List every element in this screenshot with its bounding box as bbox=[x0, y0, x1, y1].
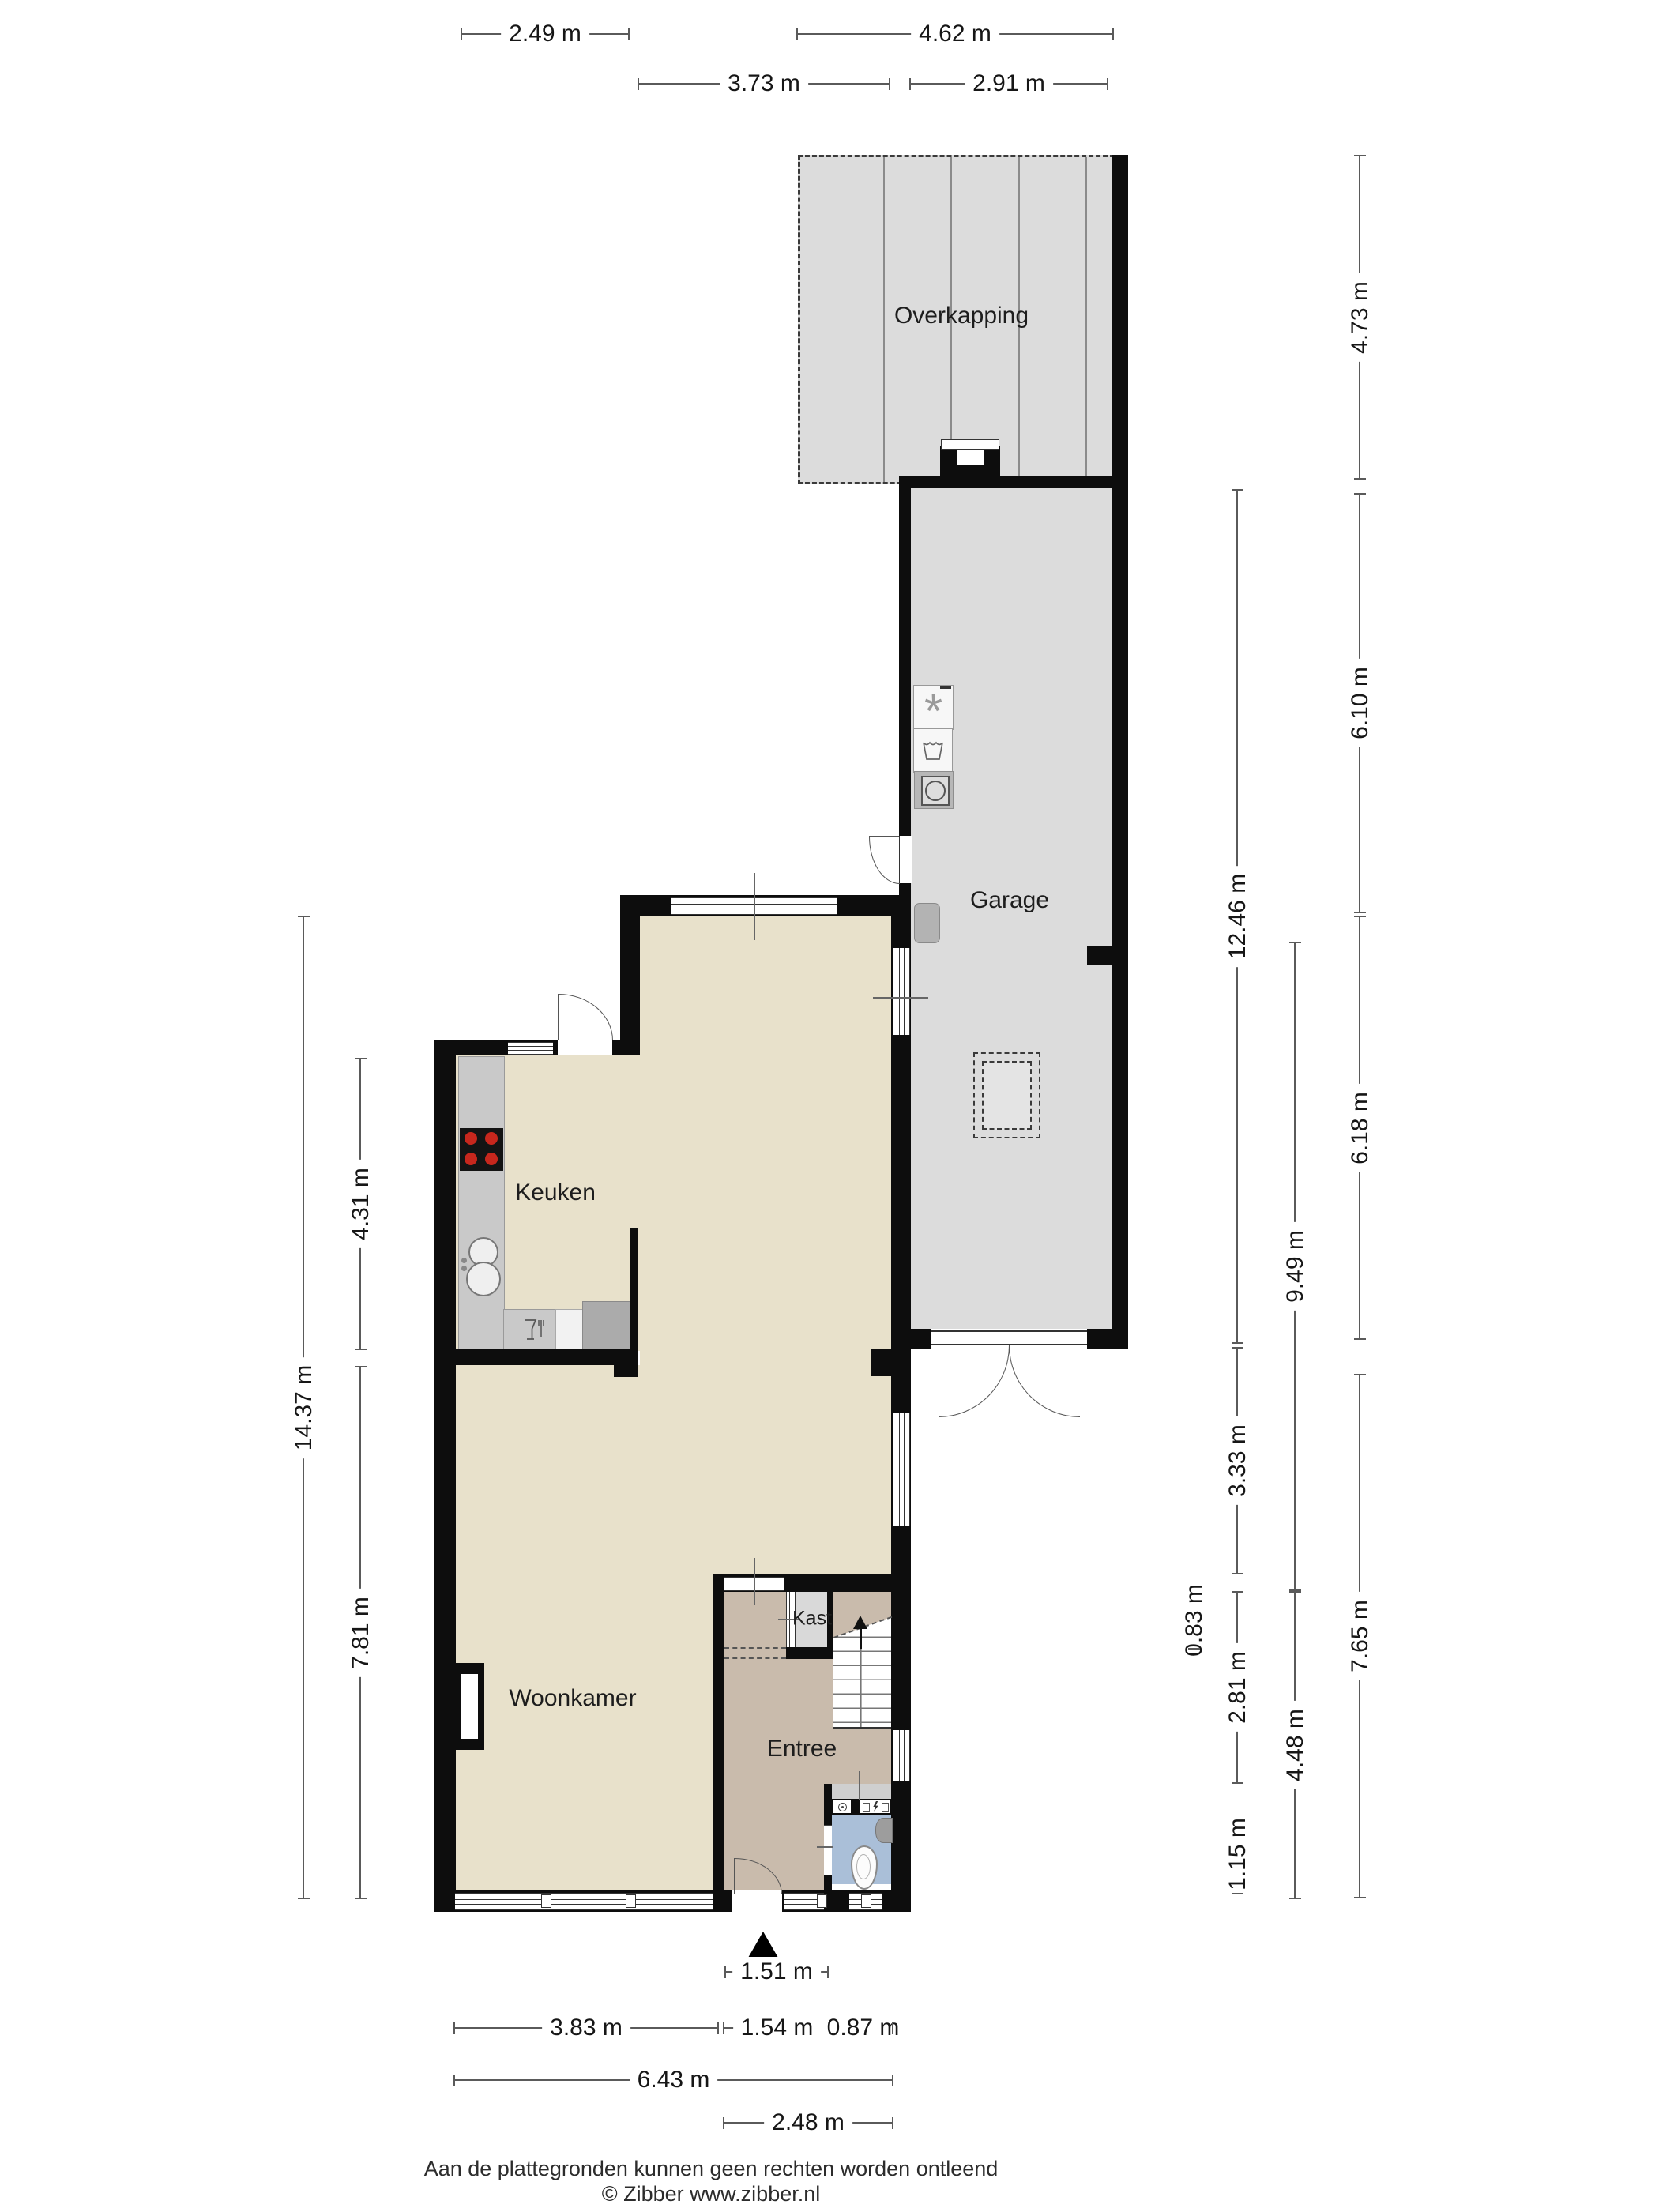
dimension-label: 1.54 m bbox=[733, 2013, 822, 2043]
dimension-label: 7.65 m bbox=[1345, 1592, 1375, 1680]
dimension-7.81-m: 7.81 m bbox=[359, 1367, 361, 1898]
dimension-label: 0.83 m bbox=[1179, 1576, 1209, 1665]
dimension-label: 3.73 m bbox=[720, 69, 808, 99]
dimension-1.51-m: 1.51 m bbox=[725, 1971, 828, 1973]
dimension-3.73-m: 3.73 m bbox=[638, 83, 890, 85]
dimension-6.10-m: 6.10 m bbox=[1359, 494, 1360, 912]
footer-credit: © Zibber www.zibber.nl bbox=[602, 2182, 821, 2206]
dimension-label: 7.81 m bbox=[346, 1589, 376, 1677]
dimension-2.81-m: 2.81 m bbox=[1236, 1592, 1238, 1783]
dimension-0.83-m: 0.83 m bbox=[1193, 1592, 1194, 1649]
dimension-label: 3.33 m bbox=[1223, 1416, 1253, 1505]
dimension-1.15-m: 1.15 m bbox=[1236, 1815, 1238, 1894]
dimension-2.91-m: 2.91 m bbox=[910, 83, 1108, 85]
dimension-label: 1.51 m bbox=[732, 1957, 821, 1987]
dimension-label: 2.81 m bbox=[1223, 1643, 1253, 1732]
dimension-label: 12.46 m bbox=[1223, 866, 1253, 967]
dimension-4.62-m: 4.62 m bbox=[797, 33, 1113, 35]
dimension-label: 4.48 m bbox=[1281, 1701, 1311, 1789]
dimension-4.31-m: 4.31 m bbox=[359, 1059, 361, 1349]
dimension-3.83-m: 3.83 m bbox=[454, 2027, 718, 2029]
dimension-6.18-m: 6.18 m bbox=[1359, 916, 1360, 1339]
dimensions-layer: 2.49 m4.62 m3.73 m2.91 m1.51 m3.83 m1.54… bbox=[0, 0, 1659, 2212]
dimension-6.43-m: 6.43 m bbox=[454, 2079, 893, 2081]
dimension-14.37-m: 14.37 m bbox=[303, 916, 304, 1898]
dimension-label: 2.48 m bbox=[764, 2108, 852, 2138]
footer-disclaimer: Aan de plattegronden kunnen geen rechten… bbox=[424, 2157, 999, 2181]
dimension-label: 6.43 m bbox=[630, 2065, 718, 2095]
dimension-label: 2.49 m bbox=[501, 19, 589, 49]
dimension-2.49-m: 2.49 m bbox=[461, 33, 629, 35]
dimension-4.48-m: 4.48 m bbox=[1294, 1592, 1296, 1898]
dimension-label: 1.15 m bbox=[1223, 1810, 1253, 1898]
dimension-label: 2.91 m bbox=[965, 69, 1053, 99]
dimension-label: 0.87 m bbox=[819, 2013, 908, 2043]
dimension-9.49-m: 9.49 m bbox=[1294, 942, 1296, 1590]
dimension-label: 4.73 m bbox=[1345, 273, 1375, 362]
dimension-label: 4.31 m bbox=[346, 1160, 376, 1248]
dimension-2.48-m: 2.48 m bbox=[724, 2122, 893, 2124]
dimension-label: 4.62 m bbox=[911, 19, 999, 49]
dimension-label: 6.10 m bbox=[1345, 659, 1375, 747]
dimension-3.33-m: 3.33 m bbox=[1236, 1348, 1238, 1574]
dimension-1.54-m: 1.54 m bbox=[724, 2027, 830, 2029]
dimension-label: 14.37 m bbox=[289, 1356, 319, 1458]
dimension-12.46-m: 12.46 m bbox=[1236, 490, 1238, 1343]
dimension-4.73-m: 4.73 m bbox=[1359, 156, 1360, 479]
dimension-0.87-m: 0.87 m bbox=[833, 2027, 893, 2029]
dimension-label: 9.49 m bbox=[1281, 1222, 1311, 1311]
dimension-label: 3.83 m bbox=[542, 2013, 630, 2043]
floor-plan-canvas: * bbox=[0, 0, 1659, 2212]
dimension-7.65-m: 7.65 m bbox=[1359, 1375, 1360, 1898]
dimension-label: 6.18 m bbox=[1345, 1084, 1375, 1172]
